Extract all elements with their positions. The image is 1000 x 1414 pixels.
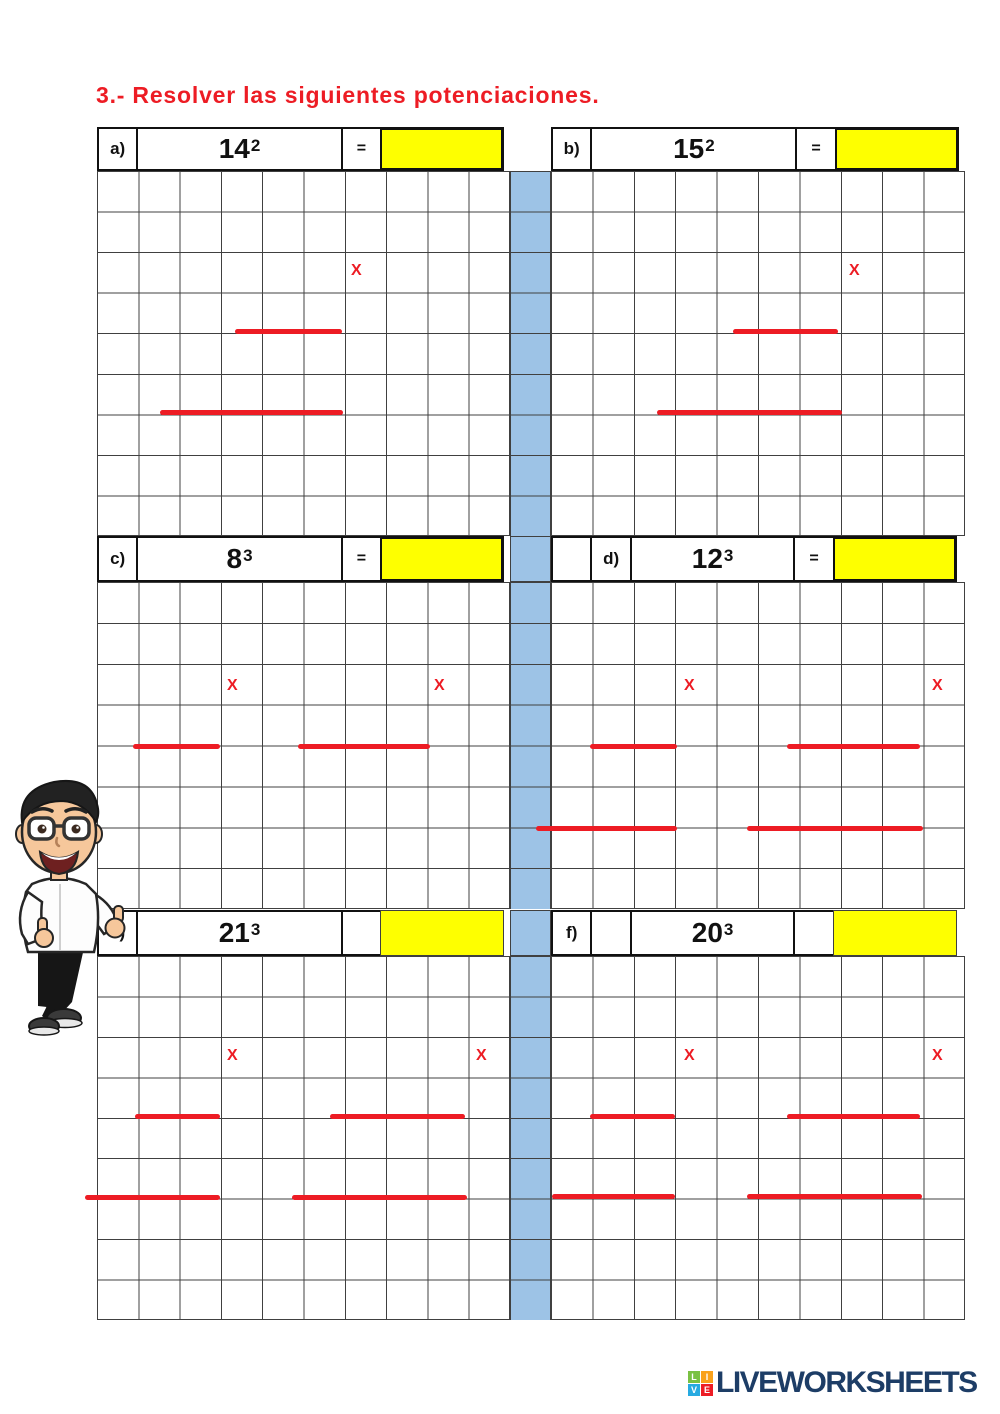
answer-line xyxy=(787,744,920,749)
center-stripe-top xyxy=(510,171,551,536)
problem-c-equals: = xyxy=(341,536,382,582)
answer-line xyxy=(292,1195,467,1200)
problem-c-expression: 83 xyxy=(136,536,343,582)
answer-line xyxy=(657,410,842,415)
problem-a-exponent: 2 xyxy=(251,136,260,156)
grid-section-e xyxy=(97,956,510,1320)
answer-line xyxy=(133,744,220,749)
problem-row-f: f) 203 xyxy=(551,910,965,956)
problem-c-exponent: 3 xyxy=(243,546,252,566)
answer-line xyxy=(85,1195,220,1200)
problem-e-equals xyxy=(341,910,382,956)
problem-d-equals: = xyxy=(793,536,834,582)
answer-line xyxy=(160,410,343,415)
multiply-x-mark-c2: X xyxy=(434,678,445,694)
problem-b-equals: = xyxy=(795,127,836,171)
logo-letter-e: E xyxy=(701,1384,713,1396)
answer-line xyxy=(235,329,342,334)
problem-f-exponent: 3 xyxy=(724,920,733,940)
problem-a-equals: = xyxy=(341,127,382,171)
problem-f-expression: 203 xyxy=(630,910,796,956)
multiply-x-mark-a: X xyxy=(351,263,362,279)
answer-box-f[interactable] xyxy=(833,910,957,956)
answer-line xyxy=(747,1194,922,1199)
problem-f-equals xyxy=(793,910,834,956)
problem-b-exponent: 2 xyxy=(705,136,714,156)
grid-section-f xyxy=(551,956,965,1320)
grid-section-b xyxy=(551,171,965,536)
answer-line xyxy=(787,1114,920,1119)
logo-letter-l: L xyxy=(688,1371,700,1383)
problem-f-label: f) xyxy=(551,910,592,956)
problem-row-d: d) 123 = xyxy=(551,536,965,582)
grid-section-a xyxy=(97,171,510,536)
multiply-x-mark-f1: X xyxy=(684,1048,695,1064)
multiply-x-mark-e2: X xyxy=(476,1048,487,1064)
center-stripe-header3 xyxy=(510,910,551,956)
answer-line xyxy=(590,744,677,749)
answer-box-b[interactable] xyxy=(835,127,959,171)
exercise-title: 3.- Resolver las siguientes potenciacion… xyxy=(96,82,600,109)
problem-c-label: c) xyxy=(97,536,138,582)
answer-line xyxy=(330,1114,465,1119)
problem-b-base: 15 xyxy=(673,133,704,165)
problem-d-label: d) xyxy=(590,536,631,582)
multiply-x-mark-f2: X xyxy=(932,1048,943,1064)
liveworksheets-footer: L I V E LIVEWORKSHEETS xyxy=(688,1366,977,1400)
answer-line xyxy=(298,744,430,749)
problem-a-base: 14 xyxy=(219,133,250,165)
answer-line xyxy=(552,1194,675,1199)
multiply-x-mark-c1: X xyxy=(227,678,238,694)
answer-line xyxy=(747,826,923,831)
problem-c-base: 8 xyxy=(227,543,243,575)
problem-b-expression: 152 xyxy=(590,127,797,171)
answer-line xyxy=(733,329,838,334)
problem-row-c: c) 83 = xyxy=(97,536,510,582)
problem-f-base: 20 xyxy=(692,917,723,949)
answer-line xyxy=(135,1114,220,1119)
problem-e-expression: 213 xyxy=(136,910,343,956)
multiply-x-mark-d1: X xyxy=(684,678,695,694)
teacher-avatar xyxy=(2,772,130,1038)
liveworksheets-logo-icon: L I V E xyxy=(688,1371,713,1396)
answer-box-d[interactable] xyxy=(833,536,957,582)
spacer-cell xyxy=(551,536,592,582)
multiply-x-mark-e1: X xyxy=(227,1048,238,1064)
problem-d-base: 12 xyxy=(692,543,723,575)
spacer-cell xyxy=(590,910,631,956)
problem-d-expression: 123 xyxy=(630,536,796,582)
center-stripe-bottom xyxy=(510,956,551,1320)
problem-a-label: a) xyxy=(97,127,138,171)
center-stripe-header2 xyxy=(510,536,551,582)
teacher-avatar-illustration xyxy=(2,772,130,1038)
liveworksheets-wordmark: LIVEWORKSHEETS xyxy=(716,1366,977,1400)
worksheet-page: 3.- Resolver las siguientes potenciacion… xyxy=(0,0,1000,1414)
answer-line xyxy=(536,826,677,831)
problem-e-base: 21 xyxy=(219,917,250,949)
problem-row-e: e) 213 xyxy=(97,910,510,956)
answer-line xyxy=(590,1114,675,1119)
problem-b-label: b) xyxy=(551,127,592,171)
center-stripe-middle xyxy=(510,582,551,909)
answer-box-e[interactable] xyxy=(380,910,504,956)
answer-box-c[interactable] xyxy=(380,536,504,582)
logo-letter-i: I xyxy=(701,1371,713,1383)
problem-a-expression: 142 xyxy=(136,127,343,171)
multiply-x-mark-b: X xyxy=(849,263,860,279)
problem-e-exponent: 3 xyxy=(251,920,260,940)
answer-box-a[interactable] xyxy=(380,127,504,171)
problem-d-exponent: 3 xyxy=(724,546,733,566)
multiply-x-mark-d2: X xyxy=(932,678,943,694)
problem-row-a: a) 142 = xyxy=(97,127,510,171)
logo-letter-v: V xyxy=(688,1384,700,1396)
problem-row-b: b) 152 = xyxy=(551,127,965,171)
